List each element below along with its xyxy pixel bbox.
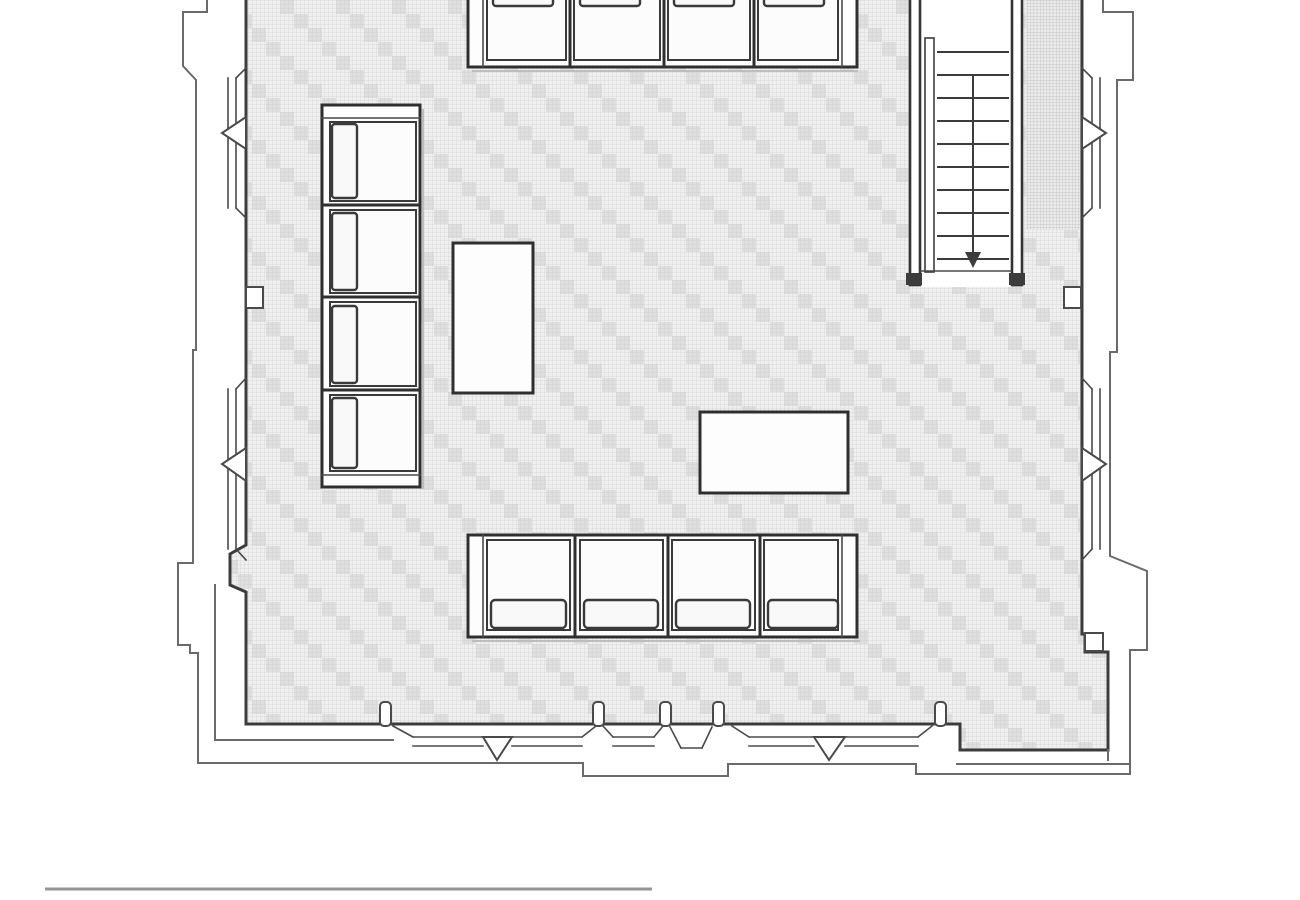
sofa-cushion <box>332 398 357 468</box>
mullion-post <box>935 702 946 726</box>
window-reveal-triangle <box>1082 448 1106 481</box>
door-recess <box>670 727 712 748</box>
side-table <box>453 243 533 393</box>
bench-cushion <box>491 600 566 628</box>
bench-cushion <box>580 0 640 6</box>
pilaster-notch-right <box>1064 287 1081 308</box>
sofa-cushion <box>332 306 357 383</box>
pilaster-notch-left <box>246 287 263 308</box>
bench-cushion <box>764 0 824 6</box>
bench-seat <box>574 0 660 60</box>
window-bottom-left-bay <box>393 726 596 760</box>
window-reveal-triangle <box>1082 117 1106 149</box>
window-reveal-triangle <box>814 737 845 760</box>
mullion-post <box>713 702 724 726</box>
stair-wall-cap-right <box>1009 273 1025 285</box>
inner-offset-right <box>957 750 1130 764</box>
bench-seat <box>668 0 750 60</box>
right-wall-windows <box>1082 68 1106 560</box>
bench-cushion <box>584 600 658 628</box>
sofa-cushion <box>332 213 357 290</box>
window-reveal-triangle <box>483 737 512 760</box>
window-right-upper <box>1082 68 1106 218</box>
bench-cushion <box>768 600 838 628</box>
mullion-post <box>380 702 391 726</box>
top-bench <box>468 0 858 71</box>
mullion-post <box>593 702 604 726</box>
pilaster-notch-bottom-right <box>1085 633 1103 651</box>
bench-cushion <box>493 0 553 6</box>
wall-hatch-strip <box>1026 0 1080 230</box>
window-left-upper <box>222 68 246 218</box>
sofa-cushion <box>332 124 357 198</box>
bottom-bench <box>468 535 860 641</box>
window-right-lower <box>1082 378 1106 560</box>
bench-cushion <box>676 600 750 628</box>
window-left-lower <box>222 378 246 560</box>
stair-wall-cap-left <box>906 273 922 285</box>
window-reveal-triangle <box>222 117 246 149</box>
mullion-post <box>660 702 671 726</box>
left-wall-windows <box>222 68 246 560</box>
bench-seat <box>487 0 566 60</box>
window-bottom-right-bay <box>732 726 932 760</box>
window-reveal-triangle <box>222 448 246 481</box>
left-sofa <box>322 105 423 489</box>
bench-cushion <box>674 0 734 6</box>
stair-wall-left <box>910 0 920 285</box>
stair-handrail <box>925 38 934 272</box>
stair-wall-right <box>1012 0 1022 285</box>
floor-plan-drawing <box>0 0 1300 900</box>
center-table <box>700 412 848 493</box>
window-bottom-center-segment <box>603 726 663 746</box>
bench-seat <box>758 0 838 60</box>
floor-plan-page <box>0 0 1300 900</box>
